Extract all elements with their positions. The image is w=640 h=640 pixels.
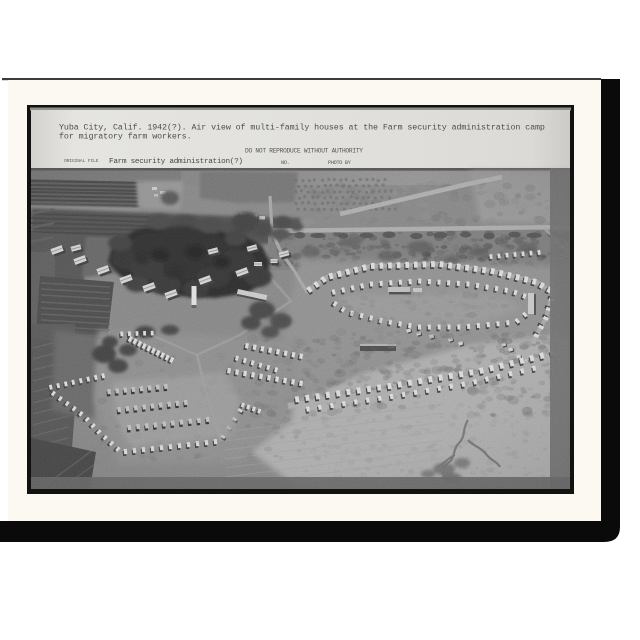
svg-text:DO NOT REPRODUCE WITHOUT AUTHO: DO NOT REPRODUCE WITHOUT AUTHORITY xyxy=(245,148,363,155)
svg-text:PHOTO BY: PHOTO BY xyxy=(328,160,352,166)
svg-text:for migratory farm workers.: for migratory farm workers. xyxy=(59,132,192,142)
svg-text:Farm security administration(?: Farm security administration(?) xyxy=(109,158,243,166)
svg-text:ORIGINAL FILE: ORIGINAL FILE xyxy=(64,158,99,164)
svg-text:NO.: NO. xyxy=(281,160,289,166)
